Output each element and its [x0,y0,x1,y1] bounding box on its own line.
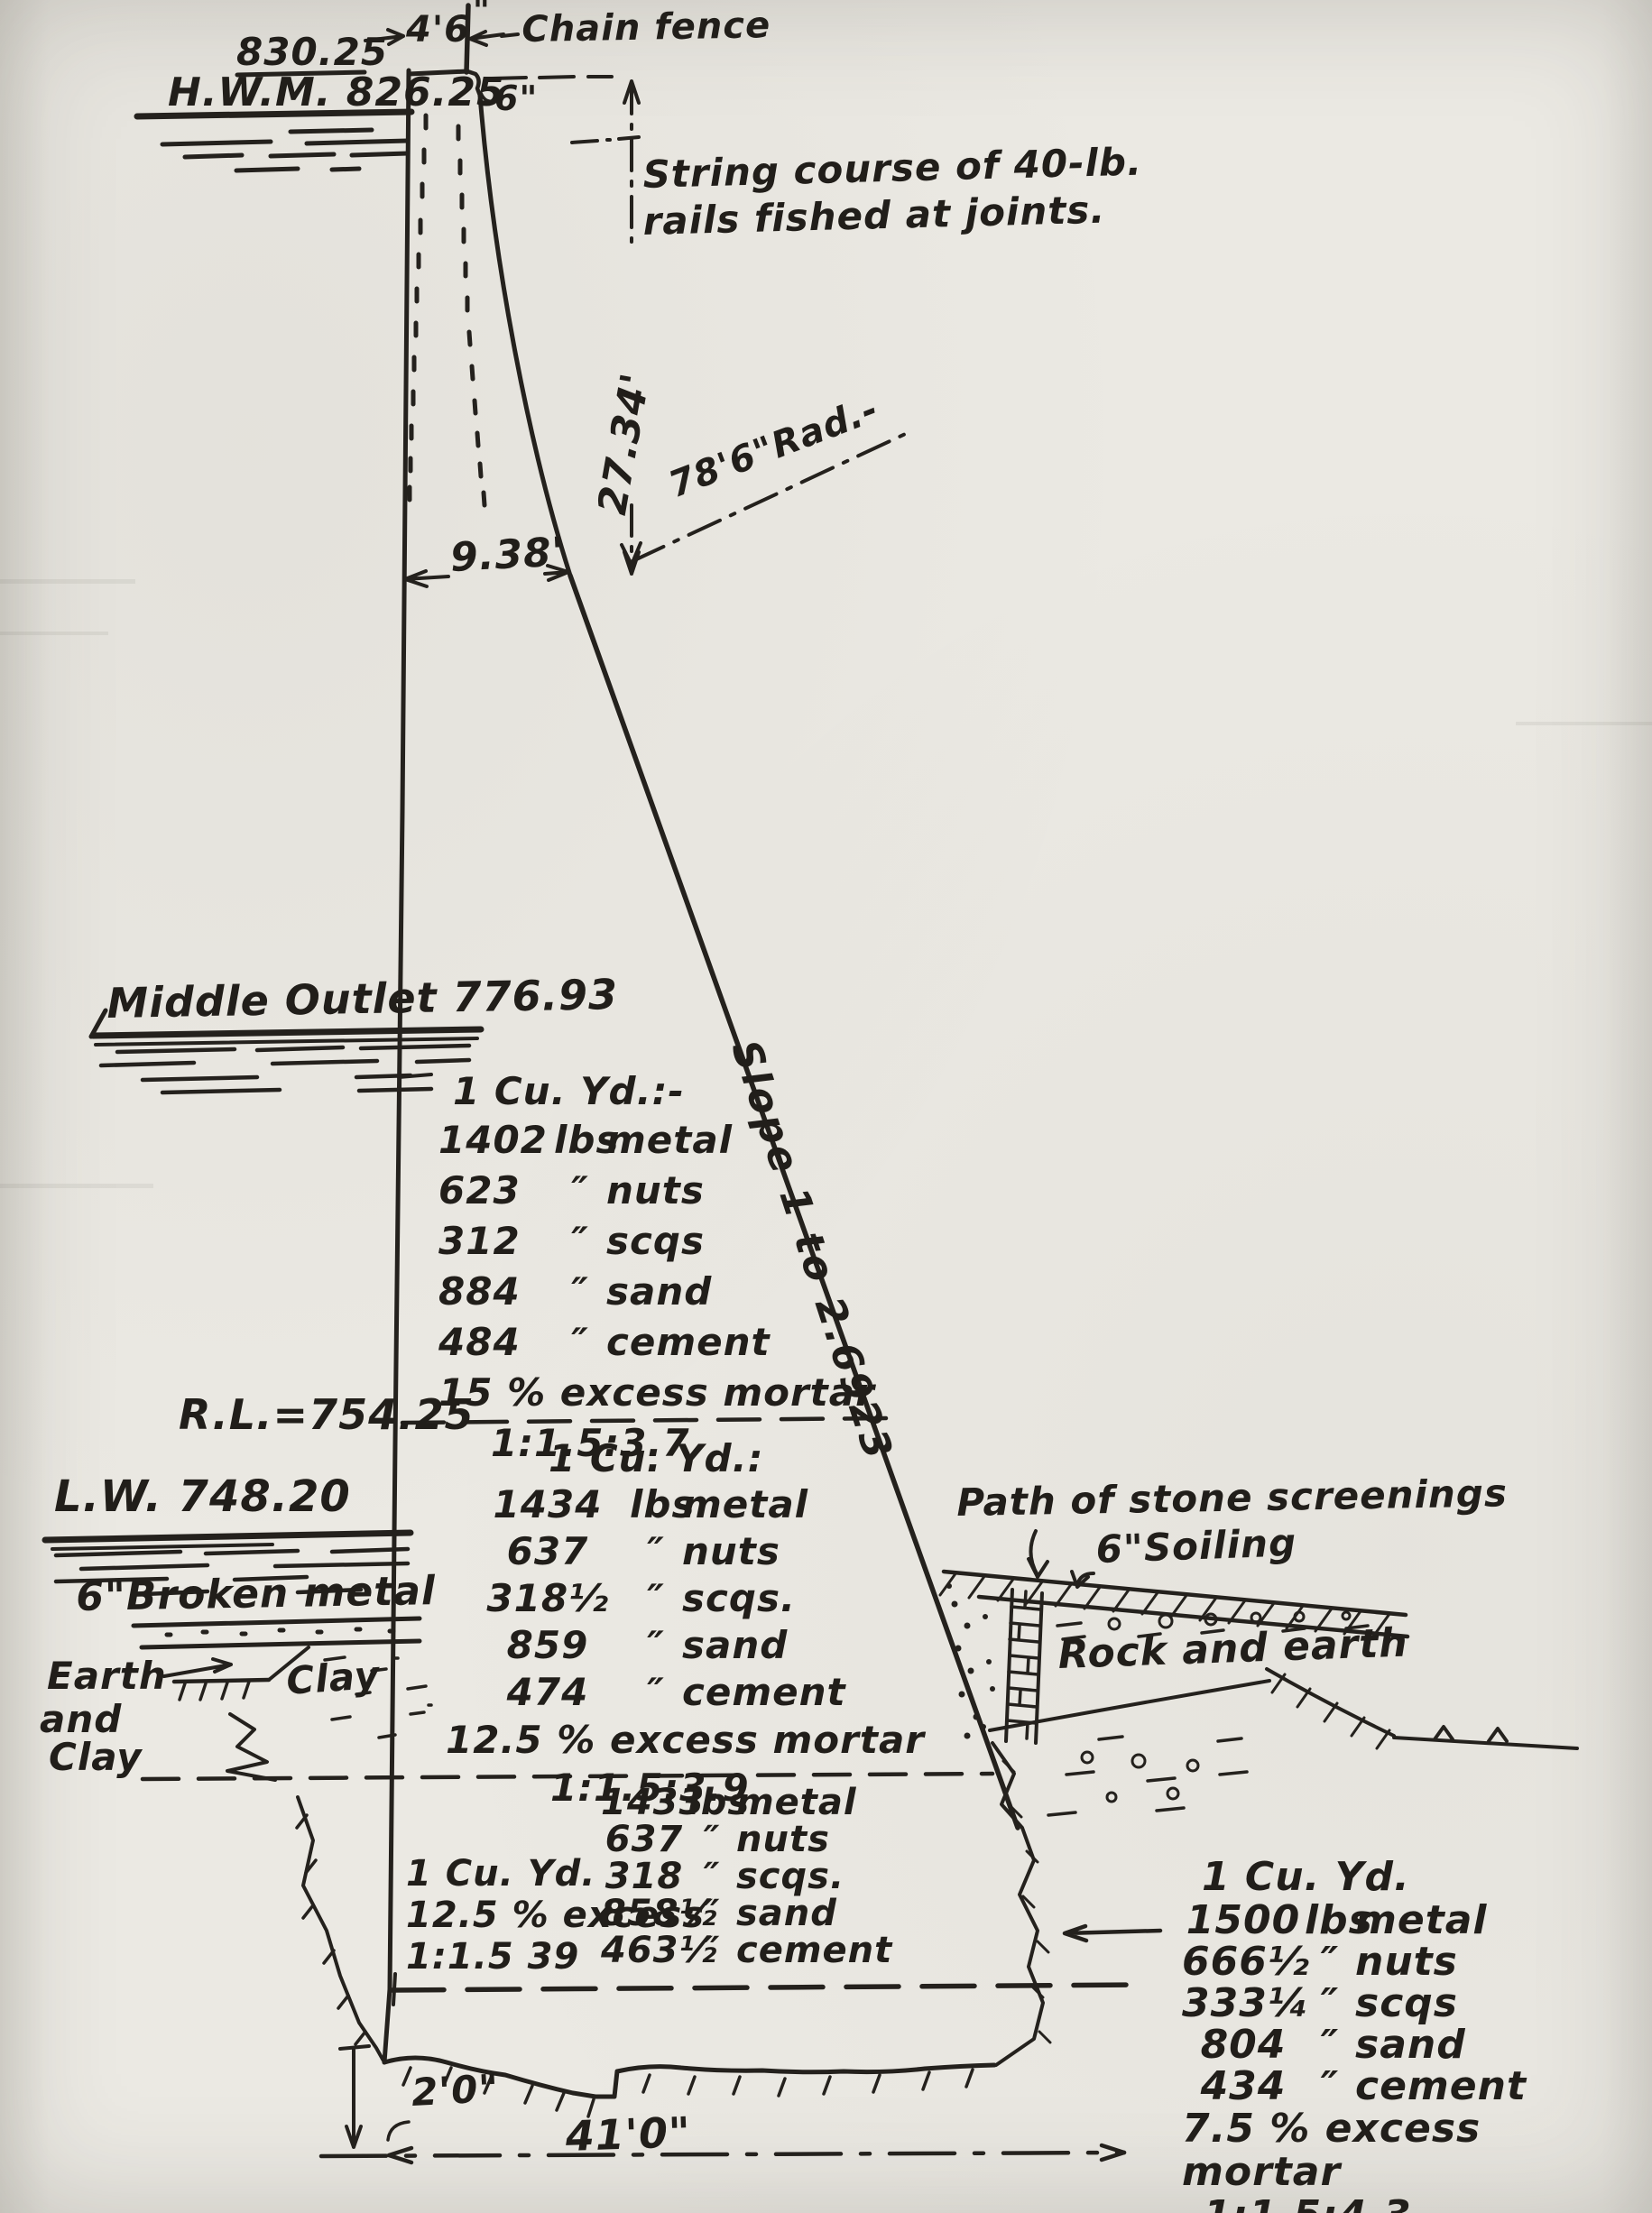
material: metal [682,1481,808,1528]
quantity: 463½ [601,1932,688,1969]
label-width-dim: 41'0" [565,2110,692,2158]
label-earth-1: Earth [47,1656,167,1696]
quantity: 484 [438,1317,554,1368]
unit: ″ [554,1166,606,1216]
material: scqs [1355,1983,1458,2024]
quantity: 804 [1182,2024,1305,2066]
label-chain-fence: Chain fence [521,6,771,49]
lw-underline [45,1533,411,1540]
quantity: 333¼ [1182,1983,1305,2024]
unit: ″ [1305,1983,1355,2024]
material: sand [606,1267,712,1317]
unit: ″ [1305,2066,1355,2107]
label-high-water-mark: H.W.M. 826.25 [168,72,505,114]
mix-row: 623″nuts [438,1166,875,1216]
mix-block-lower-right: 1 Cu. Yd. 1500lbsmetal 666½″nuts 333¼″sc… [1182,1855,1652,2213]
width-dim-line [321,2153,1124,2156]
material: sand [736,1895,837,1932]
mix-row: 333¼″scqs [1182,1983,1652,2024]
mix-row: 804″sand [1182,2024,1652,2066]
mix-block-upper: 1 Cu. Yd.:- 1402lbsmetal 623″nuts 312″sc… [438,1068,875,1469]
mix-row: 666½″nuts [1182,1941,1652,1983]
unit: lbs [630,1481,682,1528]
mix-row: 637″nuts [466,1528,925,1575]
material: cement [606,1317,771,1368]
broken-metal-dots [167,1629,393,1635]
material: sand [1355,2024,1466,2066]
label-low-water: L.W. 748.20 [54,1474,351,1519]
unit: ″ [688,1932,736,1969]
unit: ″ [630,1575,682,1622]
unit: lbs [554,1115,606,1166]
label-middle-outlet: Middle Outlet 776.93 [106,973,618,1025]
label-inch-mark: " [473,0,491,29]
label-clay: Clay [285,1655,381,1701]
label-broken-metal: 6"Broken metal [76,1571,436,1618]
middle-outlet-water [101,1046,469,1093]
clay-ledge [174,1680,269,1682]
mix-row: 318½″scqs. [466,1575,925,1622]
unit: ″ [1305,2024,1355,2066]
unit: ″ [1305,1941,1355,1983]
label-crest-elevation: 830.25 [236,32,388,72]
upstream-face-line [384,70,409,2062]
material: cement [682,1669,846,1716]
pebble-dots [946,1583,995,1739]
mix-row: 318″scqs. [601,1858,892,1895]
unit: ″ [630,1669,682,1716]
trench-left-wall [298,1797,384,2062]
quantity: 637 [466,1528,630,1575]
quantity: 1402 [438,1115,554,1166]
hwm-water-dashes [162,130,408,171]
earth-arrow [164,1659,231,1676]
mix-excess: 15 % excess mortar [438,1368,875,1418]
quantity: 318½ [466,1575,630,1622]
unit: ″ [630,1622,682,1669]
excavation-left-jagged [227,1714,275,1780]
mix-row: 858½″sand [601,1895,892,1932]
clay-ledge-hatch [180,1682,249,1700]
short-dashdot-mark [572,137,639,143]
rock-jagged-down [992,1743,1043,2065]
mix-block-lower-middle: 1433lbsmetal 637″nuts 318″scqs. 858½″san… [601,1784,892,1969]
mix-title: 1 Cu. Yd.:- [438,1068,875,1115]
quantity: 474 [466,1669,630,1716]
depth-dim-line [340,2046,369,2147]
quantity: 859 [466,1622,630,1669]
unit: ″ [554,1317,606,1368]
material: cement [736,1932,892,1969]
unit: ″ [554,1267,606,1317]
downstream-face-curve [480,96,570,576]
unit: ″ [688,1858,736,1895]
mix-row: 1402lbsmetal [438,1115,875,1166]
material: scqs. [736,1858,844,1895]
material: scqs. [682,1575,796,1622]
stone-path-arrow [1029,1531,1047,1577]
mix-row: 859″sand [466,1622,925,1669]
middle-outlet-underline2 [96,1038,477,1045]
label-crest-width: 4'6 [406,11,470,49]
mix-row: 463½″cement [601,1932,892,1969]
dam-section-drawing: 830.25 H.W.M. 826.25 4'6 " Chain fence 6… [0,0,1652,2213]
joint-dots-right [458,126,485,505]
quantity: 666½ [1182,1941,1305,1983]
quantity: 318 [601,1858,688,1895]
depth-leader-hook [388,2122,409,2140]
mix-row: 474″cement [466,1669,925,1716]
mix-excess: 12.5 % excess mortar [446,1716,925,1765]
quantity: 637 [601,1821,688,1858]
material: nuts [736,1821,830,1858]
mix-block-middle: 1 Cu. Yd.: 1434lbsmetal 637″nuts 318½″sc… [466,1436,925,1812]
label-earth-2: and [40,1700,122,1739]
mix-row: 1434lbsmetal [466,1481,925,1528]
mix-row: 434″cement [1182,2066,1652,2107]
right-ground-flat [1394,1727,1577,1748]
material: nuts [682,1528,780,1575]
quantity: 623 [438,1166,554,1216]
material: cement [1355,2066,1527,2107]
quantity: 1500 [1182,1900,1305,1941]
material: metal [606,1115,733,1166]
quantity: 1434 [466,1481,630,1528]
label-step-6in: 6" [494,81,538,117]
quantity: 1433 [601,1784,688,1821]
unit: ″ [688,1821,736,1858]
quantity: 858½ [601,1895,688,1932]
label-earth-3: Clay [49,1738,143,1777]
mix-title: 1 Cu. Yd.: [466,1436,925,1481]
broken-metal-layer [134,1618,420,1647]
mix-row: 1433lbsmetal [601,1784,892,1821]
quantity: 434 [1182,2066,1305,2107]
label-stone-screenings-path: Path of stone screenings [956,1473,1508,1523]
mix-row: 637″nuts [601,1821,892,1858]
foundation-dashed-lower [392,1985,1140,1990]
unit: lbs [1305,1900,1355,1941]
unit: lbs [688,1784,736,1821]
mix-row: 484″cement [438,1317,875,1368]
foundation-dashed-tick [393,1974,395,2005]
label-depth-dim: 2'0" [411,2069,500,2113]
quantity: 884 [438,1267,554,1317]
mix-row: 312″scqs [438,1216,875,1267]
bottom-left-arrow [1065,1926,1160,1941]
right-ground-slope [1267,1669,1394,1736]
right-ground-slope-hatch [1272,1674,1389,1748]
mix-title: 1 Cu. Yd. [1182,1855,1652,1900]
label-offset-dim: 9.38' [449,531,566,579]
mix-row: 1500lbsmetal [1182,1900,1652,1941]
mix-row: 884″sand [438,1267,875,1317]
material: nuts [606,1166,705,1216]
unit: ″ [554,1216,606,1267]
material: sand [682,1622,788,1669]
unit: ″ [630,1528,682,1575]
quantity: 312 [438,1216,554,1267]
material: metal [1355,1900,1488,1941]
material: scqs [606,1216,705,1267]
lw-underline2 [52,1544,272,1549]
middle-outlet-underline [93,1029,481,1036]
material: metal [736,1784,857,1821]
mix-excess: 7.5 % excess mortar [1182,2107,1652,2194]
unit: ″ [688,1895,736,1932]
label-rl-elevation: R.L.=754.25 [179,1393,475,1436]
label-soiling: 6"Soiling [1095,1523,1297,1570]
mix-ratio: 1:1.5:4.3 [1182,2194,1652,2213]
joint-dots-left [410,115,426,500]
material: nuts [1355,1941,1458,1983]
